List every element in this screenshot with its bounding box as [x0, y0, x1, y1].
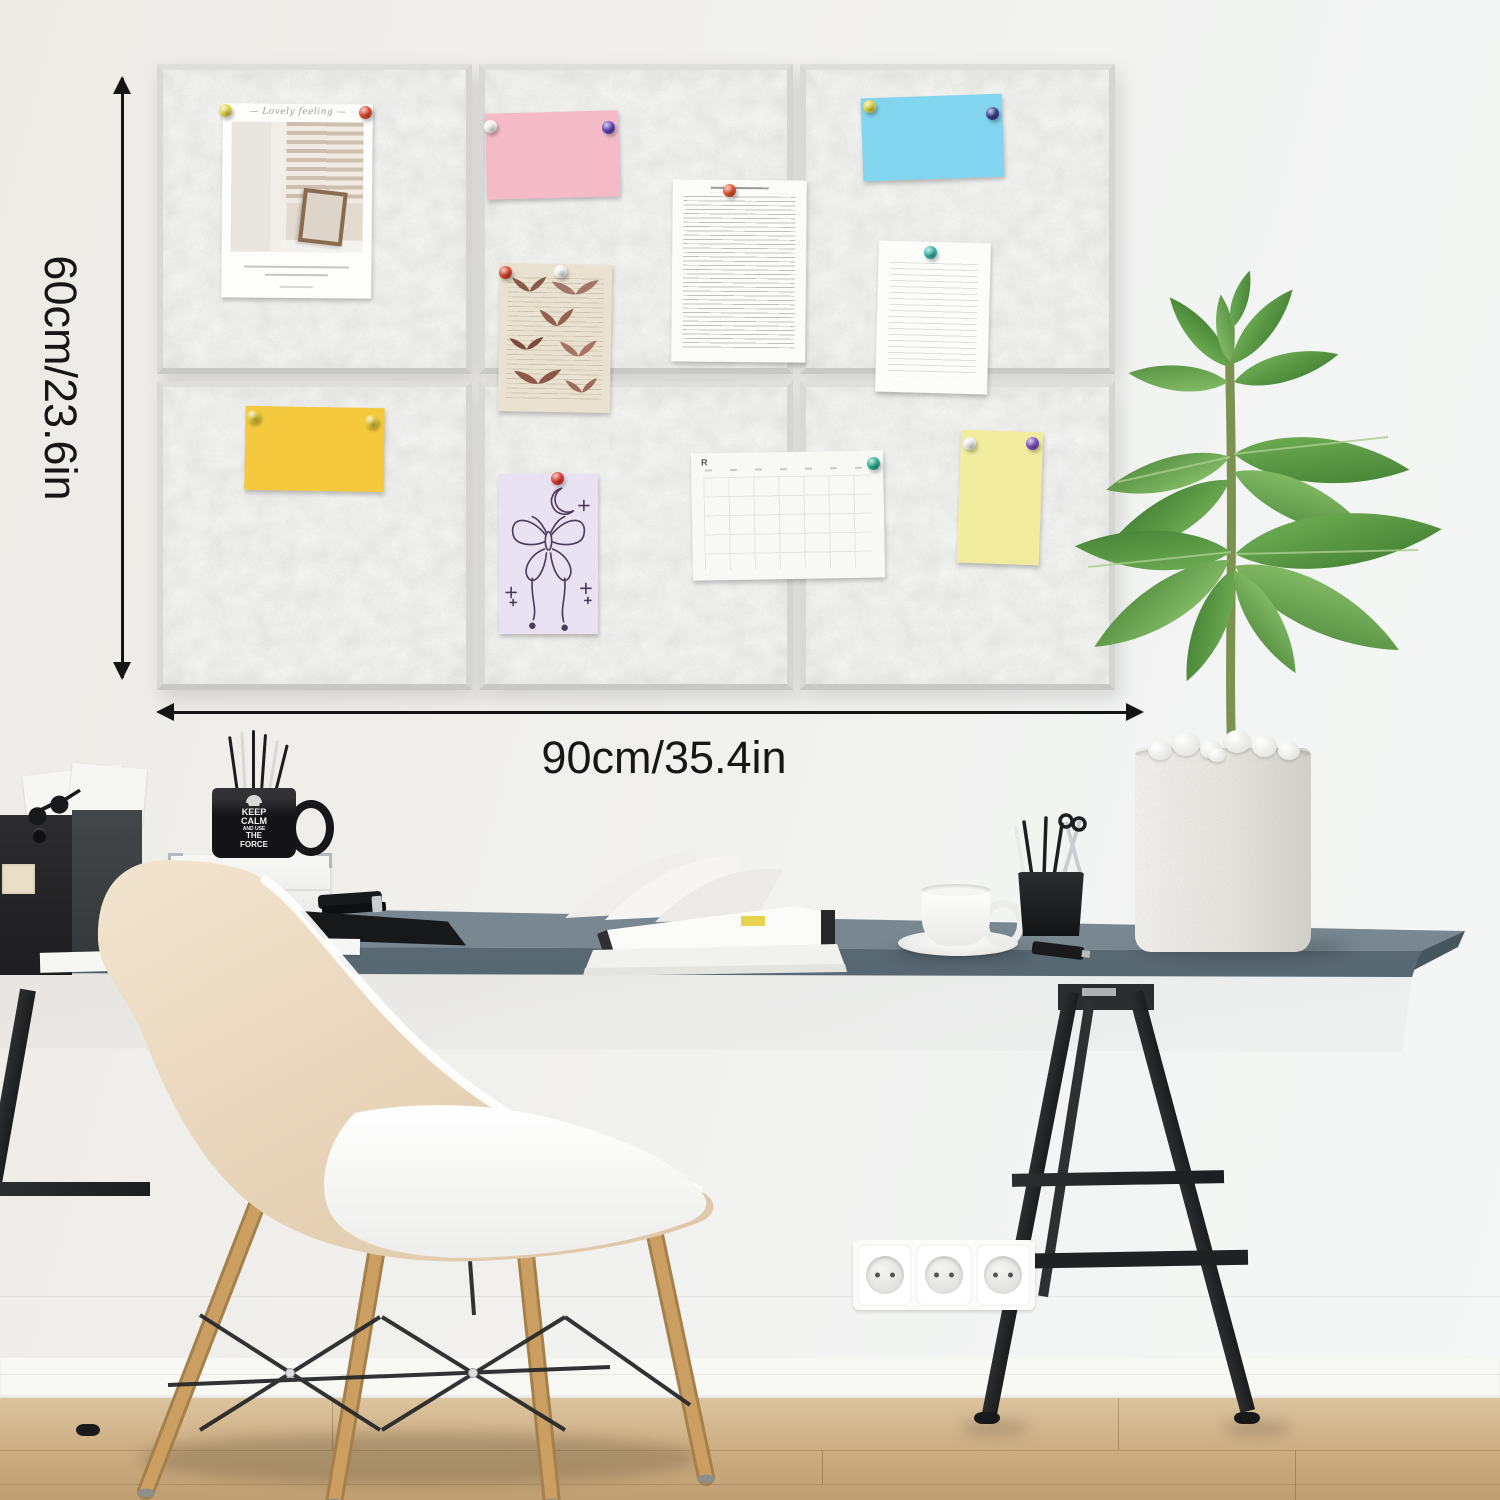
push-pin-yellow — [247, 410, 260, 423]
power-outlet — [976, 1244, 1031, 1306]
strut-bolt — [286, 1369, 295, 1378]
picture-frame — [298, 188, 348, 247]
pen-holder — [1016, 872, 1086, 936]
calendar-page: R — [691, 450, 885, 580]
blue-lined-note — [861, 94, 1005, 182]
cup-rim — [922, 884, 990, 896]
vintage-butterfly-page — [498, 263, 613, 413]
usb-tip — [1081, 950, 1090, 958]
white-pebble — [1278, 742, 1300, 760]
white-pebble — [1224, 730, 1251, 753]
height-arrow-line — [121, 78, 124, 678]
page-title-line — [710, 187, 769, 189]
desk-tools — [1002, 812, 1102, 882]
push-pin-purple — [602, 121, 615, 134]
photo-caption: — Lovely feeling — — [223, 106, 373, 117]
pen — [1024, 822, 1032, 876]
height-dimension-label: 60cm/23.6in — [30, 218, 90, 538]
socket-hole — [949, 1273, 954, 1278]
width-arrow-line — [160, 711, 1128, 714]
right-trestle-front-right-leg — [1128, 990, 1255, 1413]
calendar-grid — [703, 475, 873, 571]
caption-line — [265, 274, 328, 276]
handwritten-page — [875, 241, 991, 395]
polaroid-photo: — Lovely feeling — — [221, 103, 373, 298]
calendar-weekday-row — [705, 467, 869, 472]
right-trestle-front-left-leg — [981, 991, 1079, 1420]
scissors — [1060, 815, 1085, 874]
calendar-logo: R — [701, 457, 708, 467]
white-pebble — [1172, 732, 1200, 756]
push-pin-red — [359, 106, 372, 119]
chair-wire-struts — [168, 1261, 690, 1430]
socket — [984, 1256, 1022, 1294]
floor-plank-seam — [1118, 1398, 1119, 1450]
arrow-down-icon — [113, 662, 131, 680]
room-scene: — Lovely feeling — — [0, 0, 1500, 1500]
typed-text-page — [671, 179, 807, 362]
pink-lined-note — [485, 110, 620, 199]
caption-line — [244, 266, 349, 268]
butterfly-line-drawing — [499, 474, 598, 634]
floor-plank-seam — [822, 1450, 823, 1484]
push-pin-yellow — [219, 104, 232, 117]
paintbrush — [252, 730, 255, 792]
plant-foliage — [1058, 232, 1500, 772]
white-pebble — [1252, 736, 1277, 757]
trestle-foot-shadow — [1222, 1420, 1292, 1436]
push-pin-white — [484, 120, 497, 133]
push-pin-orange — [723, 184, 736, 197]
trestle-hardware — [1082, 988, 1116, 996]
push-pin-red — [499, 266, 512, 279]
power-outlet — [857, 1244, 912, 1306]
paintbrush — [228, 736, 239, 792]
chair-foot-caps — [137, 1475, 715, 1500]
coffee-cup — [922, 888, 990, 946]
vader-helmet-icon — [244, 794, 264, 807]
paintbrush — [240, 732, 246, 792]
push-pin-red — [551, 472, 564, 485]
arrow-up-icon — [113, 76, 131, 94]
push-pin-green — [867, 457, 880, 470]
photo-image — [231, 121, 364, 252]
white-pebble — [1148, 740, 1172, 760]
socket-hole — [875, 1273, 880, 1278]
eames-chair — [50, 845, 730, 1500]
socket — [866, 1256, 904, 1294]
socket-hole — [993, 1273, 998, 1278]
box-label — [2, 864, 35, 894]
push-pin-violet — [1026, 437, 1039, 450]
butterflies-illustration — [498, 263, 613, 413]
trestle-foot-shadow — [960, 1420, 1030, 1436]
strut-bolt — [469, 1369, 478, 1378]
socket-hole — [890, 1273, 895, 1278]
yellow-lined-note — [244, 406, 384, 492]
caption-line — [280, 286, 313, 288]
arrow-left-icon — [156, 703, 174, 721]
push-pin-navy — [986, 107, 999, 120]
socket — [925, 1256, 963, 1294]
push-pin-teal — [924, 246, 937, 259]
handwriting-lines — [887, 257, 978, 378]
push-pin-white — [963, 437, 976, 450]
wall-outlet-strip — [853, 1240, 1035, 1310]
push-pin-yellow — [365, 415, 378, 428]
width-dimension-label: 90cm/35.4in — [444, 732, 884, 784]
plant-stem — [1230, 327, 1232, 760]
plant-pot — [1135, 748, 1311, 952]
paintbrush — [260, 734, 267, 792]
plant-leaves — [1073, 268, 1443, 686]
push-pin-yellow — [863, 100, 876, 113]
socket-hole — [934, 1273, 939, 1278]
ruler — [1016, 828, 1024, 876]
socket-hole — [1008, 1273, 1013, 1278]
push-pin-white — [554, 265, 567, 278]
sticky-tab — [741, 916, 765, 926]
power-outlet — [916, 1244, 971, 1306]
typed-lines — [682, 193, 795, 350]
floor-plank-seam — [1295, 1450, 1296, 1500]
white-pebble — [1208, 748, 1226, 762]
butterfly-sketch — [499, 474, 598, 634]
